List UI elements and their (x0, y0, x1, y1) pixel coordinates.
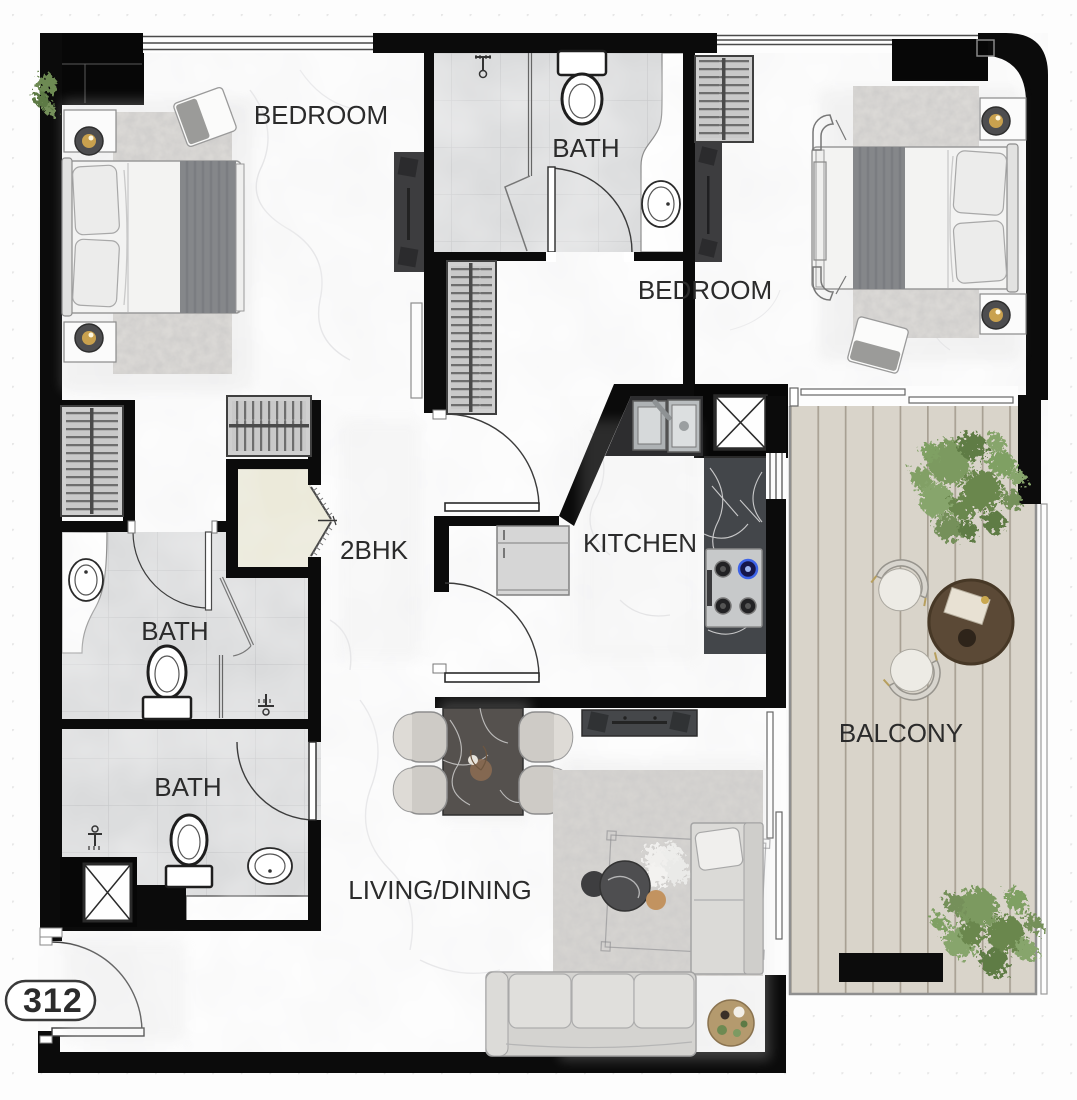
svg-text:312: 312 (23, 982, 83, 1020)
svg-text:BEDROOM: BEDROOM (254, 100, 388, 130)
svg-text:BATH: BATH (141, 616, 208, 646)
svg-text:LIVING/DINING: LIVING/DINING (348, 875, 531, 905)
svg-text:2BHK: 2BHK (340, 535, 409, 565)
svg-text:BEDROOM: BEDROOM (638, 275, 772, 305)
svg-text:KITCHEN: KITCHEN (583, 528, 697, 558)
svg-text:BATH: BATH (552, 133, 619, 163)
svg-text:BATH: BATH (154, 772, 221, 802)
svg-text:BALCONY: BALCONY (839, 718, 963, 748)
